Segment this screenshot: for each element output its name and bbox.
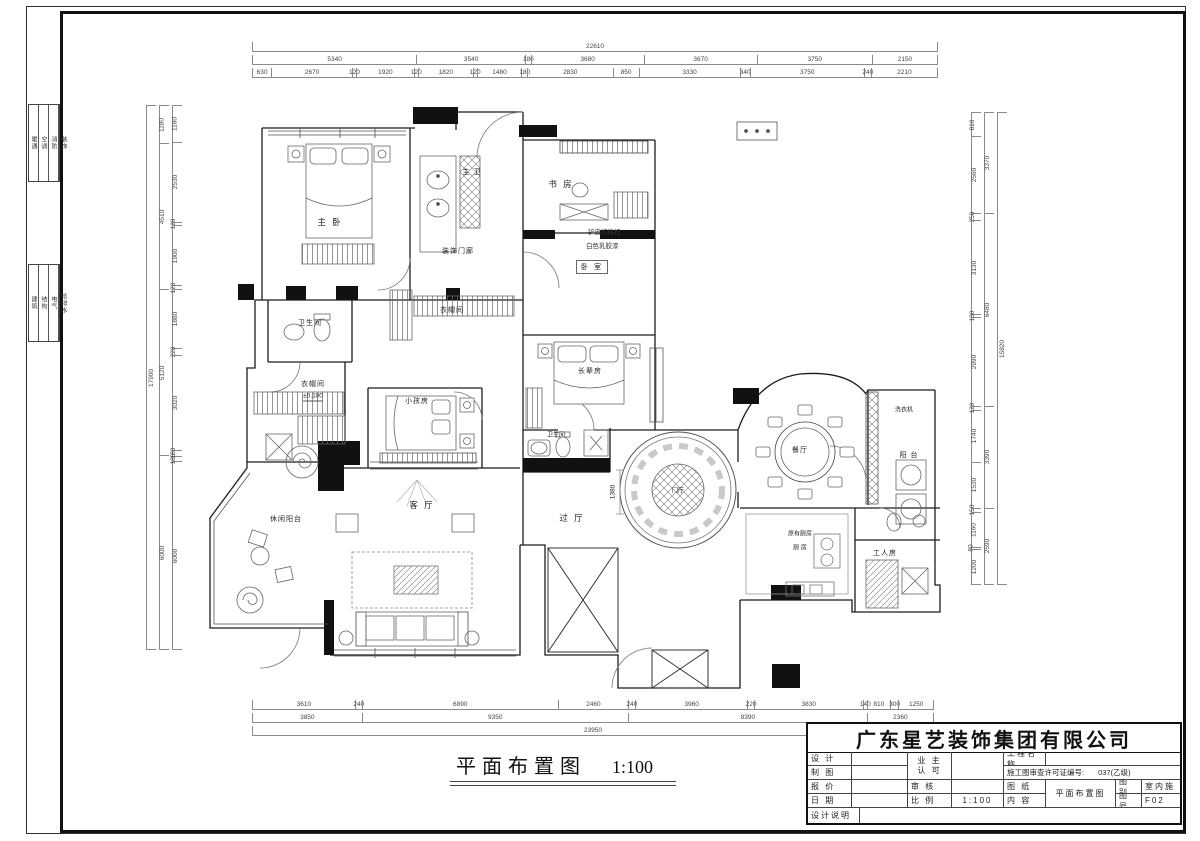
room-label-bedroom: 卧 室 <box>576 260 608 274</box>
tb-audit-label: 审 核 <box>908 780 952 794</box>
tb-draft-value <box>852 766 908 780</box>
tb-permit-value: 037(乙级) <box>1098 767 1131 778</box>
tb-quote-value <box>852 780 908 794</box>
room-label-master-bedroom: 主 卧 <box>317 216 342 228</box>
furniture-elder-room <box>526 342 640 428</box>
tb-sheet-label: 图 纸 <box>1004 780 1046 794</box>
furniture-living-room <box>336 480 479 646</box>
interior-dim-1380: 1380 <box>610 485 617 499</box>
tb-content-label: 内 容 <box>1004 794 1046 808</box>
dim-left-overall: 17900 <box>146 105 156 650</box>
dim-right-major: 3370648033902590 <box>984 112 994 585</box>
paint-note-line1: 铲皮打底扫 <box>588 226 621 236</box>
room-label-foyer: 门厅 <box>672 486 684 495</box>
dim-top-minor: 6302670120192012018201201480180283085033… <box>252 68 938 78</box>
dim-right-overall: 15820 <box>997 112 1007 585</box>
room-label-cloakroom-2: 衣帽间 <box>301 379 325 389</box>
tb-number-value: F02 <box>1142 794 1180 808</box>
room-label-living-room: 客 厅 <box>409 499 434 511</box>
tb-category-value: 室内施 <box>1142 780 1180 794</box>
room-label-bath-1: 卫生间 <box>298 318 322 328</box>
dim-bottom-minor: 3610240689024602403960220383014081030012… <box>252 700 934 710</box>
tb-design-value <box>852 752 908 766</box>
room-label-hallway: 过 厅 <box>559 512 584 524</box>
room-label-kitchen-line1: 原有厨房 <box>788 529 812 538</box>
tb-scale-label: 比 例 <box>908 794 952 808</box>
room-label-balcony: 阳 台 <box>900 450 919 460</box>
tb-category-label: 图别 <box>1116 780 1142 794</box>
tb-number-label: 图号 <box>1116 794 1142 808</box>
furniture-master-bath <box>414 156 514 316</box>
elevator-shaft <box>548 548 708 688</box>
tb-scale-value: 1:100 <box>952 794 1004 808</box>
company-name: 广东星艺装饰集团有限公司 <box>808 724 1180 753</box>
tb-owner-value <box>952 752 1004 780</box>
room-label-kitchen-line2: 厨 房 <box>793 543 807 552</box>
sheet-title: 平面布置图1:100 <box>456 750 653 779</box>
tb-audit-value <box>952 780 1004 794</box>
title-block: 广东星艺装饰集团有限公司 设 计 制 图 报 价 日 期 业 主 认 可 审 核… <box>806 722 1182 825</box>
tb-project-value <box>1046 752 1180 766</box>
tb-project-label: 工程名称 <box>1004 752 1046 766</box>
tb-permit: 施工图审查许可证编号: 037(乙级) <box>1004 766 1180 780</box>
room-label-dining: 餐厅 <box>792 445 808 455</box>
level-mark: ±0.100 <box>303 393 323 402</box>
washer-label: 洗衣机 <box>895 405 913 414</box>
room-label-leisure-balcony: 休闲阳台 <box>270 514 302 524</box>
tb-owner-label: 业 主 认 可 <box>908 752 952 780</box>
furniture-service-balcony <box>896 460 926 524</box>
tb-notes-label: 设计说明 <box>808 808 860 823</box>
sheet-title-scale: 1:100 <box>612 757 653 777</box>
tb-design-label: 设 计 <box>808 752 852 766</box>
tb-content-value: 平面布置图 <box>1046 780 1116 808</box>
furniture-kitchen <box>746 514 848 596</box>
room-label-cloakroom-1: 衣帽间 <box>440 305 464 315</box>
sheet-title-underline <box>450 781 676 786</box>
dim-top-major: 534035401803680367037502150 <box>252 55 938 65</box>
room-label-child-room: 小孩房 <box>405 396 429 406</box>
dim-top-overall: 22610 <box>252 42 938 52</box>
tb-draft-label: 制 图 <box>808 766 852 780</box>
floorplan-sheet: 暖通 空调 消防 装饰 建筑 结构 电气 给排水 <box>0 0 1200 841</box>
sheet-title-text: 平面布置图 <box>456 756 586 778</box>
furniture-leisure-balcony <box>237 446 318 613</box>
tb-notes-value <box>860 808 1180 823</box>
dim-left-minor: 118025301201900120188022030201801806000 <box>172 105 182 650</box>
room-label-study: 书 房 <box>548 178 573 190</box>
furniture-worker-room <box>866 513 928 608</box>
tb-date-value <box>852 794 908 808</box>
paint-note-line2: 白色乳胶漆 <box>586 240 619 250</box>
furniture-child-room <box>386 396 474 450</box>
furniture-master-bedroom <box>288 144 412 340</box>
tb-owner-line2: 认 可 <box>917 766 941 776</box>
tb-permit-label: 施工图审查许可证编号: <box>1007 767 1084 778</box>
dim-left-major: 1180451051206000 <box>159 105 169 650</box>
room-label-bath-2: 卫生间 <box>547 430 565 439</box>
room-label-porch: 装饰门廊 <box>442 246 474 256</box>
dim-right-minor: 8102560250313010029901201740153015011608… <box>971 112 981 585</box>
room-label-master-bath: 主 卫 <box>463 167 482 177</box>
room-label-worker-room: 工人房 <box>873 548 897 558</box>
tb-date-label: 日 期 <box>808 794 852 808</box>
furniture-bath2 <box>528 430 608 457</box>
tb-quote-label: 报 价 <box>808 780 852 794</box>
tb-owner-line1: 业 主 <box>917 756 941 766</box>
room-label-elder-room: 长辈房 <box>578 366 602 376</box>
